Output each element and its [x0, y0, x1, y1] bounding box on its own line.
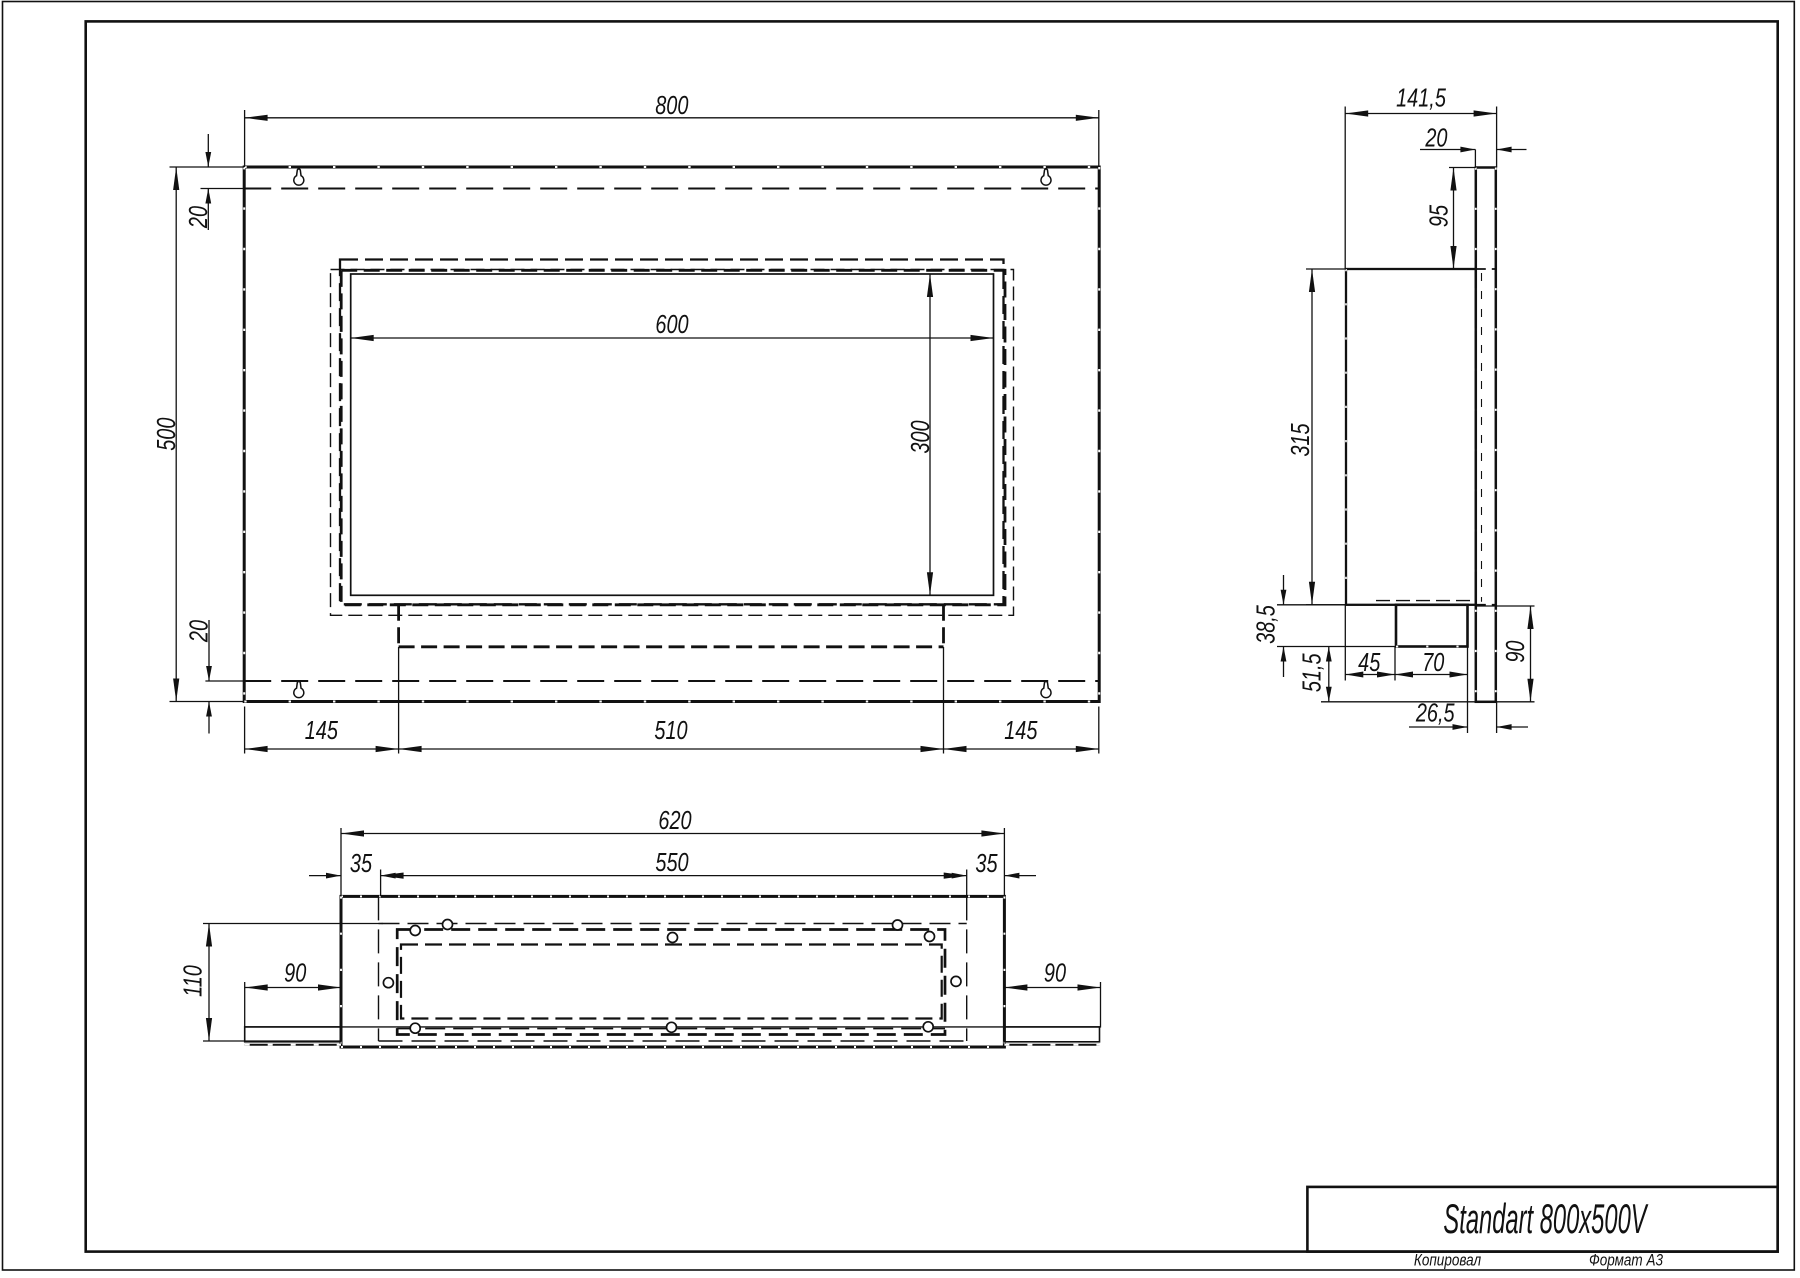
svg-text:45: 45 [1358, 647, 1380, 676]
svg-text:800: 800 [655, 91, 688, 120]
svg-text:90: 90 [1501, 640, 1530, 662]
svg-text:600: 600 [655, 310, 688, 339]
svg-text:90: 90 [284, 958, 306, 987]
svg-text:145: 145 [305, 716, 338, 745]
svg-text:20: 20 [184, 620, 213, 643]
svg-text:300: 300 [906, 420, 935, 453]
svg-text:620: 620 [658, 806, 691, 835]
svg-text:26,5: 26,5 [1415, 698, 1455, 727]
svg-text:Копировал: Копировал [1414, 1251, 1482, 1270]
svg-text:90: 90 [1044, 958, 1066, 987]
svg-text:315: 315 [1286, 423, 1315, 456]
svg-text:500: 500 [151, 417, 180, 450]
svg-text:141,5: 141,5 [1396, 83, 1446, 112]
svg-text:51,5: 51,5 [1297, 653, 1326, 692]
svg-text:145: 145 [1004, 716, 1037, 745]
svg-text:Формат А3: Формат А3 [1589, 1251, 1664, 1270]
svg-text:110: 110 [178, 965, 207, 997]
svg-text:35: 35 [350, 849, 372, 878]
svg-text:550: 550 [655, 847, 688, 876]
svg-text:70: 70 [1422, 647, 1444, 676]
svg-text:35: 35 [975, 849, 997, 878]
svg-text:38,5: 38,5 [1251, 605, 1280, 644]
svg-text:Standart 800x500V: Standart 800x500V [1443, 1196, 1648, 1243]
svg-text:20: 20 [1424, 123, 1447, 152]
svg-text:95: 95 [1424, 205, 1453, 227]
svg-text:20: 20 [184, 206, 213, 229]
svg-text:510: 510 [654, 716, 687, 745]
